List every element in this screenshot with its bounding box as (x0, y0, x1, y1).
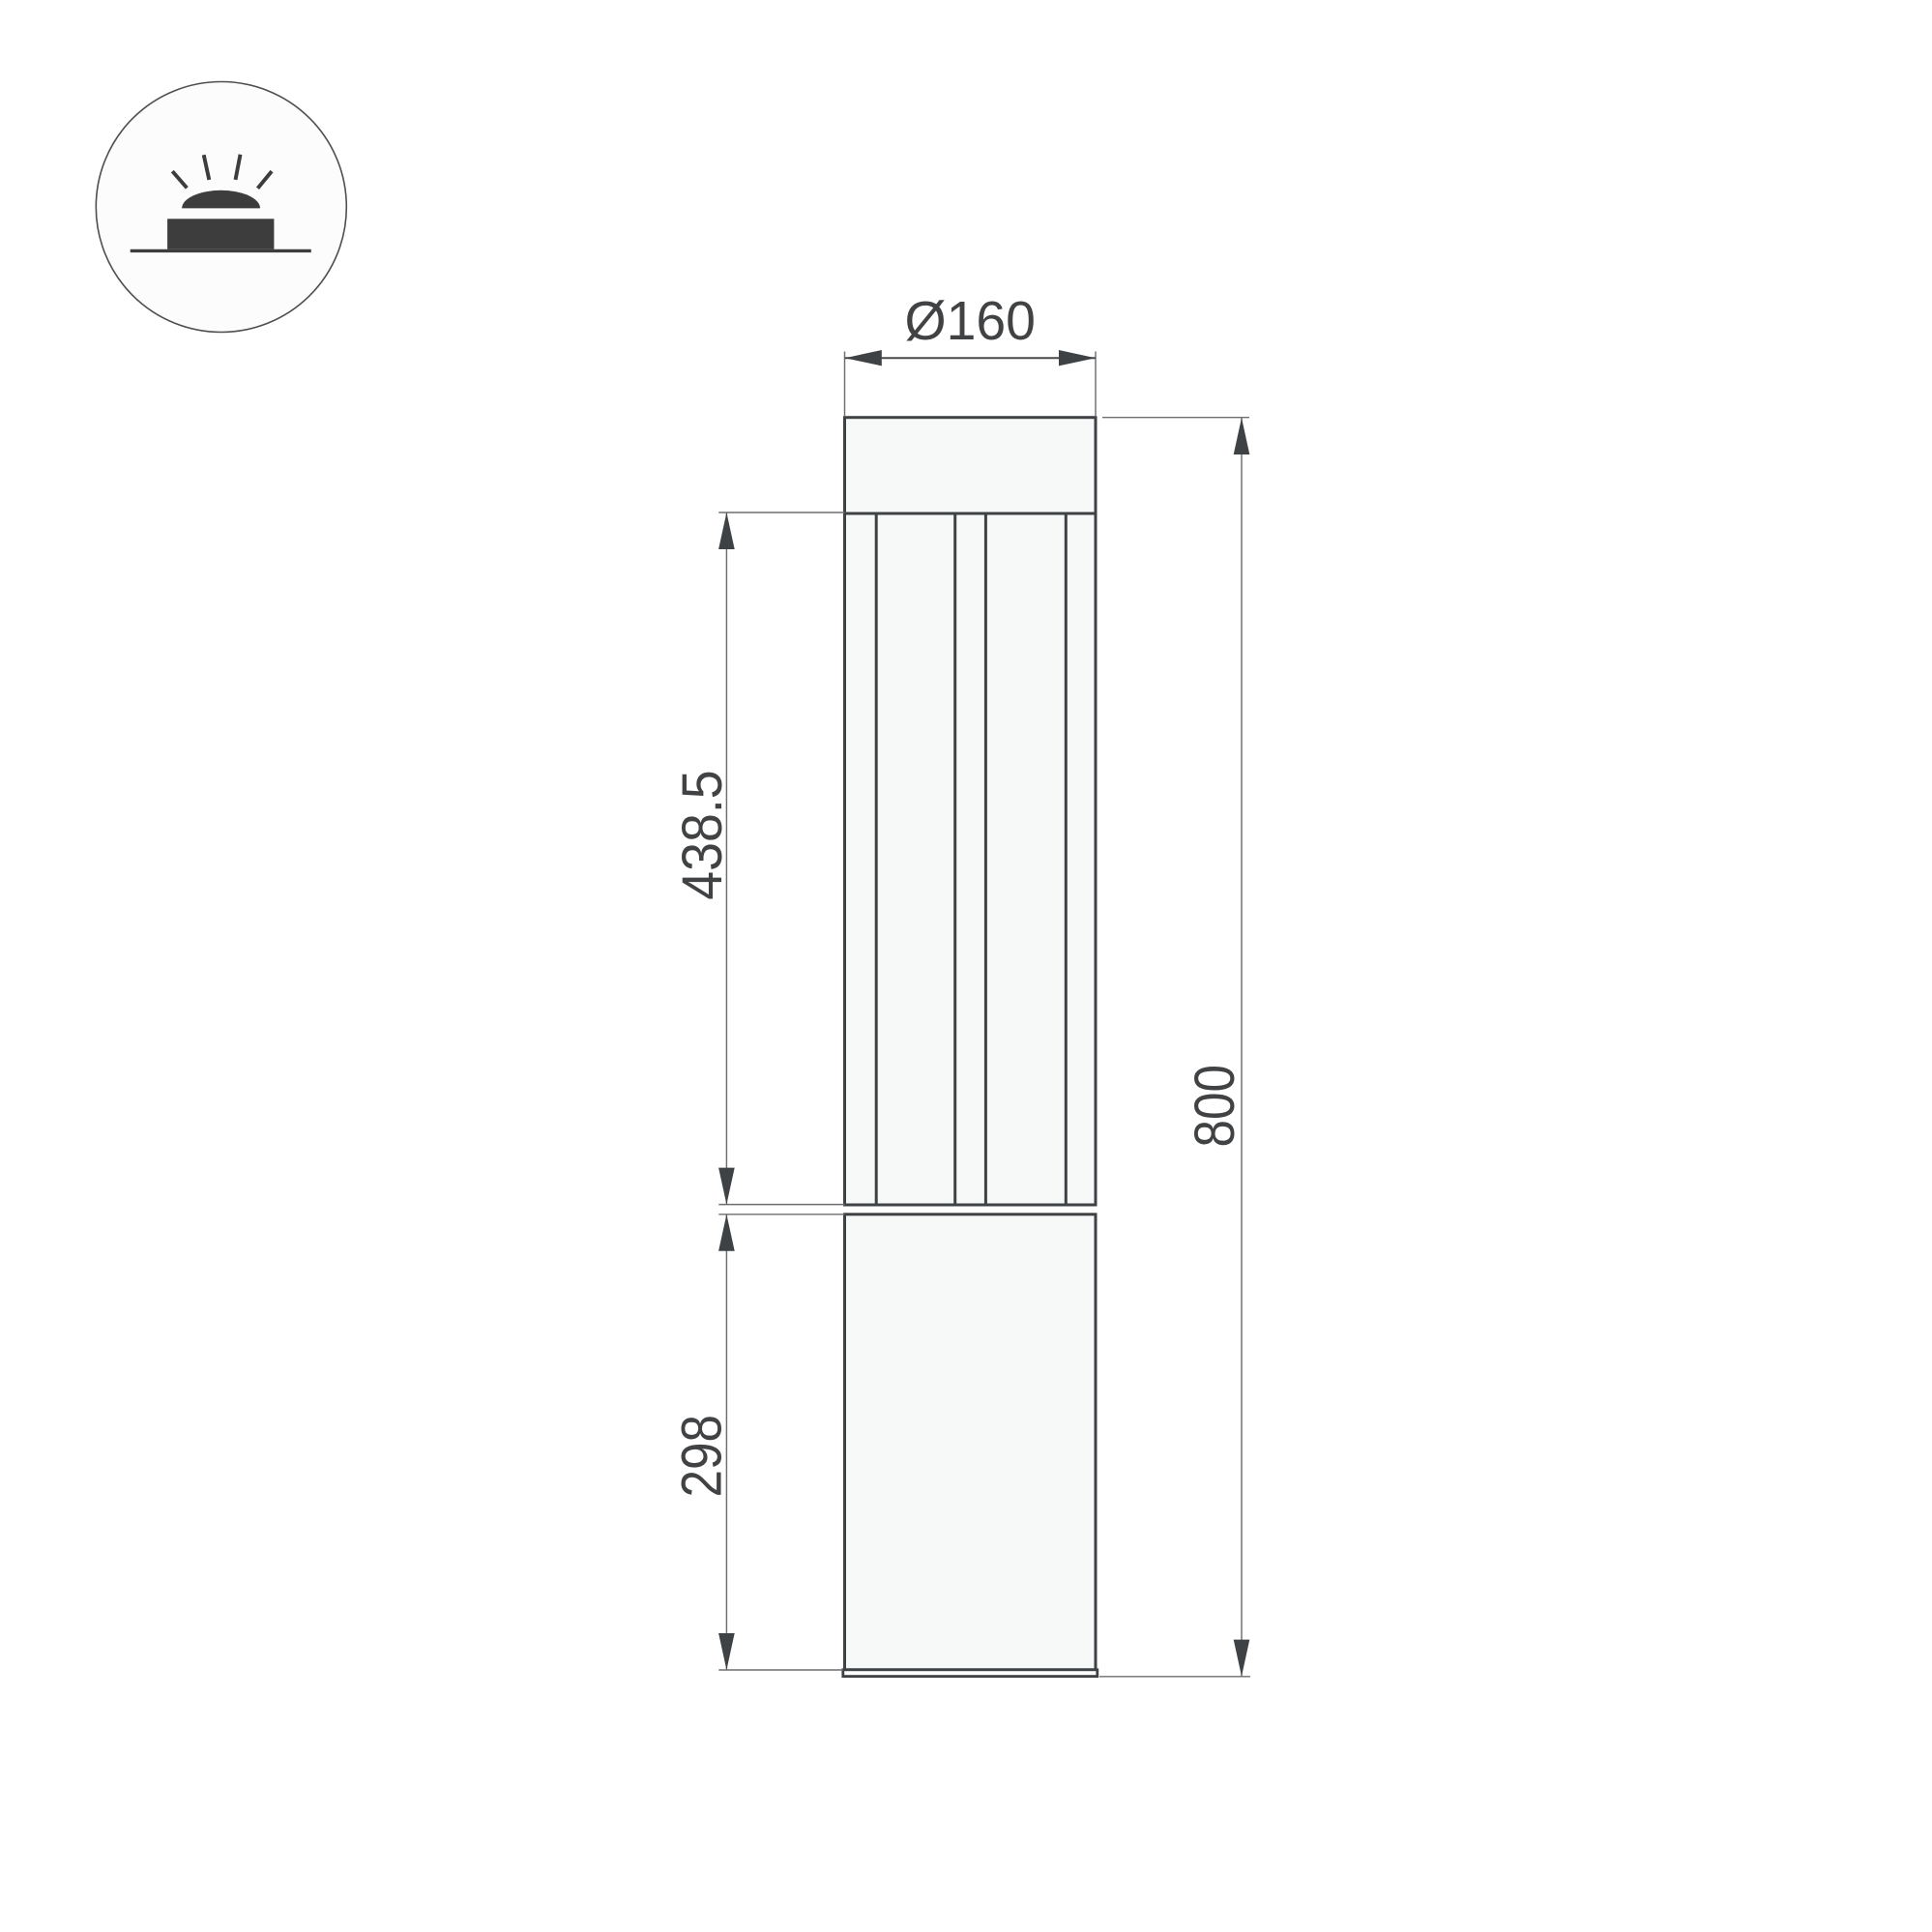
svg-text:Ø160: Ø160 (905, 290, 1037, 352)
svg-text:438.5: 438.5 (671, 770, 734, 900)
svg-text:298: 298 (671, 1415, 734, 1498)
svg-text:800: 800 (1184, 1065, 1246, 1148)
